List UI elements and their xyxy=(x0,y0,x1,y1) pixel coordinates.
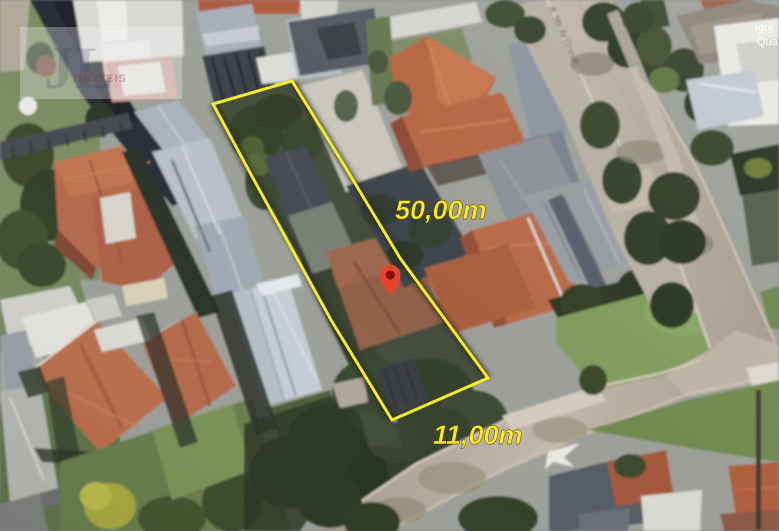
svg-text:50,00m: 50,00m xyxy=(395,195,487,225)
svg-text:Igre: Igre xyxy=(755,22,774,34)
svg-text:11,00m: 11,00m xyxy=(433,420,523,450)
svg-text:Qua: Qua xyxy=(757,36,779,48)
svg-text:IMÓVEIS: IMÓVEIS xyxy=(74,72,127,85)
svg-text:JL: JL xyxy=(44,35,114,101)
